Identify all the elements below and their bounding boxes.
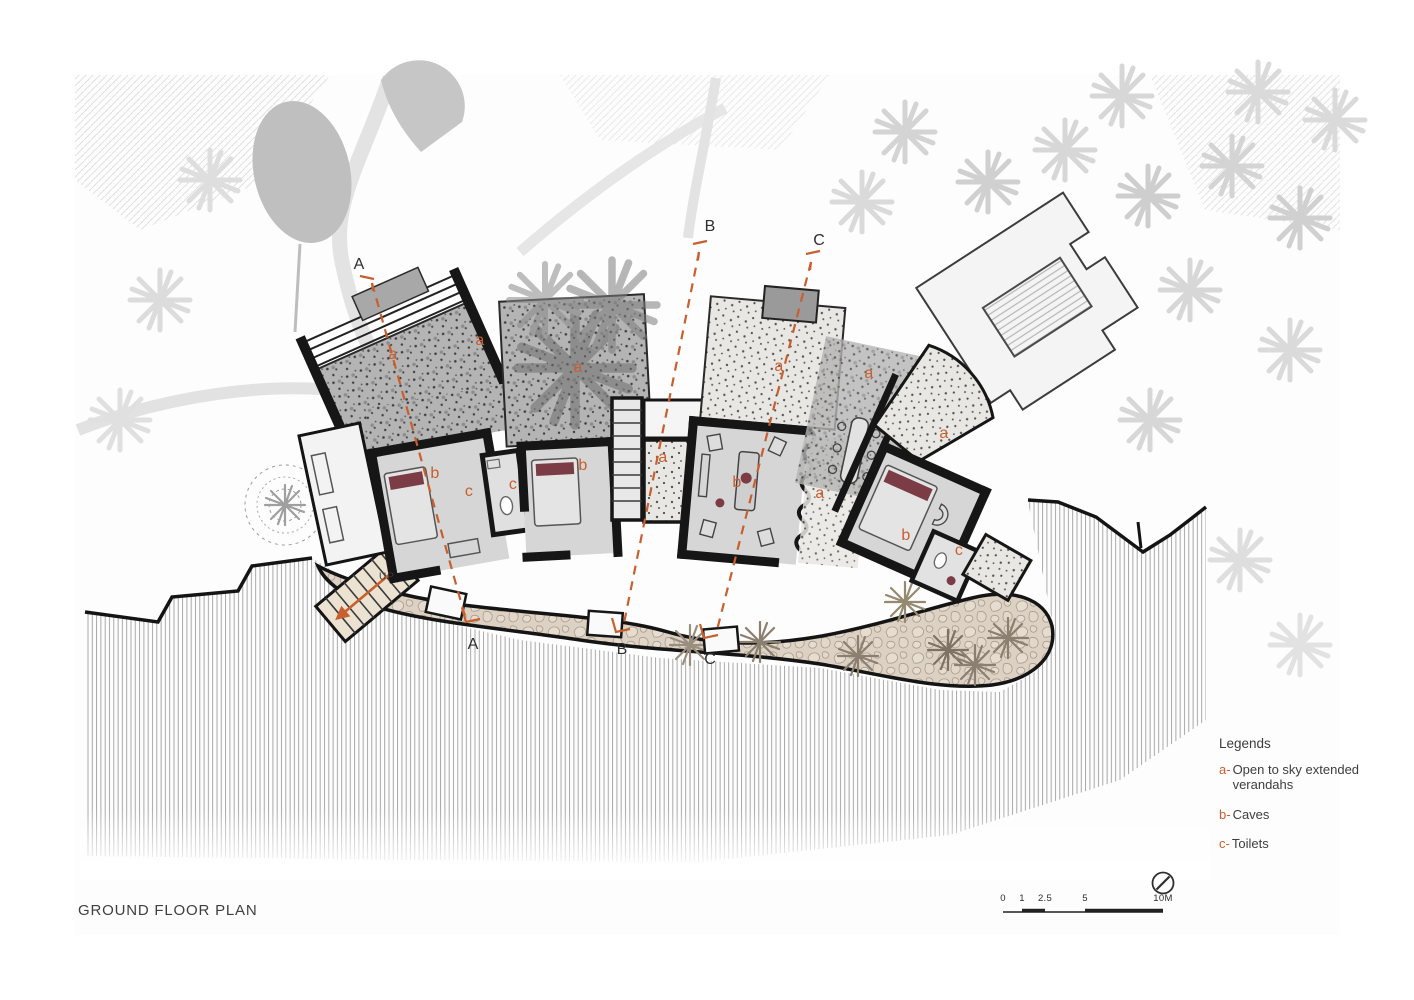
palm-tree-icon xyxy=(1092,66,1152,126)
fern-icon xyxy=(955,645,995,685)
palm-tree-icon xyxy=(1035,120,1095,180)
legend-item-toilets: c- Toilets xyxy=(1219,836,1369,851)
legend-text: Toilets xyxy=(1232,836,1269,851)
fern-icon xyxy=(885,582,925,622)
palm-tree-icon xyxy=(1118,166,1178,226)
bed-pillow xyxy=(536,462,575,476)
fern-icon xyxy=(740,622,780,662)
chair xyxy=(758,528,774,546)
palm-tree-icon xyxy=(90,390,150,450)
palm-tree-icon xyxy=(1228,62,1288,122)
legend-item-caves: b- Caves xyxy=(1219,807,1369,822)
fern-icon xyxy=(988,618,1028,658)
legend: Legends a- Open to sky extended verandah… xyxy=(1219,736,1369,865)
palm-tree-icon xyxy=(1260,320,1320,380)
palm-tree-icon xyxy=(1270,615,1330,675)
chair xyxy=(700,520,716,538)
chair xyxy=(707,434,722,451)
north-arrow-icon xyxy=(1153,873,1174,894)
palm-tree-icon xyxy=(1270,188,1330,248)
palm-tree-icon xyxy=(1120,390,1180,450)
beach-fade xyxy=(80,810,1210,880)
palm-tree-icon xyxy=(1202,136,1262,196)
page-title: GROUND FLOOR PLAN xyxy=(78,902,257,919)
palm-tree-icon xyxy=(1210,530,1270,590)
legend-key: a- xyxy=(1219,762,1231,793)
legend-key: b- xyxy=(1219,807,1231,822)
palm-tree-icon xyxy=(130,270,190,330)
legend-text: Caves xyxy=(1233,807,1270,822)
legend-text: Open to sky extended verandahs xyxy=(1233,762,1369,793)
floor-plan-canvas xyxy=(0,0,1414,1000)
palm-tree-icon xyxy=(1305,90,1365,150)
palm-tree-icon xyxy=(875,102,935,162)
sheet: a a a a a a a a b b b b c c c UP A A B B… xyxy=(0,0,1414,1000)
palm-tree-icon xyxy=(180,150,240,210)
trellis-planter xyxy=(762,286,819,323)
palm-tree-icon xyxy=(832,172,892,232)
legend-heading: Legends xyxy=(1219,736,1369,751)
palm-tree-icon xyxy=(958,152,1018,212)
legend-key: c- xyxy=(1219,836,1230,851)
legend-item-verandah: a- Open to sky extended verandahs xyxy=(1219,762,1369,793)
fern-icon xyxy=(838,636,878,676)
palm-tree-icon xyxy=(1160,260,1220,320)
